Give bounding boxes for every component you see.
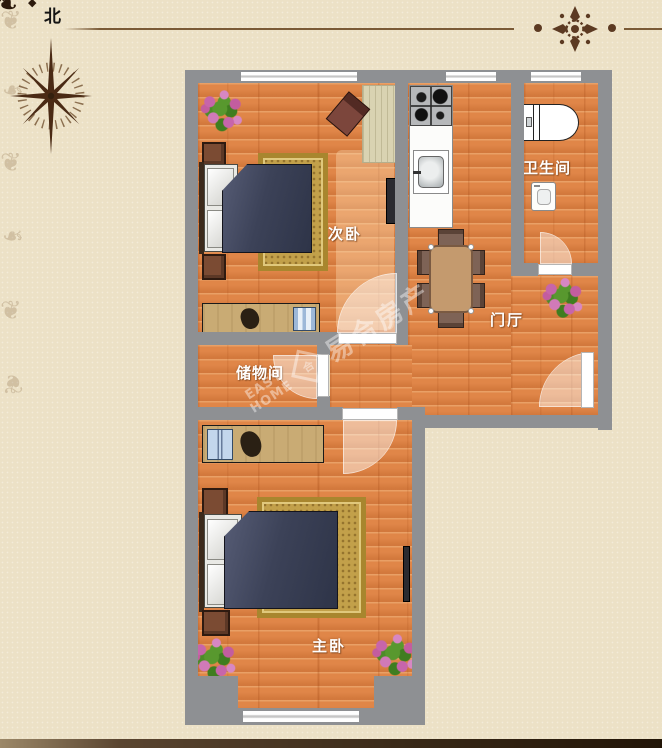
north-label: 北 — [44, 2, 61, 27]
compass-rose-icon — [8, 36, 94, 154]
wall-bathroom-bottom-left — [511, 263, 538, 276]
room-label-entrance-hall: 门厅 — [490, 309, 524, 330]
storage-cabinet-icon — [202, 303, 320, 334]
flower-pot-icon — [542, 276, 584, 320]
divider-rule-left — [64, 28, 514, 30]
tv-icon — [403, 546, 410, 602]
bed-duvet — [222, 164, 312, 253]
window — [445, 71, 497, 82]
wall-corner-pier — [198, 676, 238, 708]
wall-left — [185, 70, 198, 725]
wall-corner-pier — [374, 676, 412, 708]
wall-hall-bottom — [412, 415, 612, 428]
dining-chair-icon — [438, 311, 464, 328]
nightstand-icon — [202, 254, 226, 280]
bed-duvet — [224, 511, 338, 609]
nightstand-icon — [202, 610, 230, 636]
stove-icon — [410, 86, 452, 126]
window — [240, 71, 358, 82]
door-leaf-master-bedroom — [342, 408, 398, 420]
wall-right-upper — [598, 70, 612, 430]
wall-kitchen-bathroom — [511, 83, 524, 276]
window — [530, 71, 582, 82]
nightstand-icon — [202, 142, 226, 166]
wardrobe-icon — [202, 425, 324, 463]
room-label-bathroom: 卫生间 — [523, 157, 571, 178]
room-label-secondary-bedroom: 次卧 — [328, 223, 362, 244]
floorplan-page: ❧ ◆ ❦ ❧ ❦ ❧ ❦ ❦ 北 — [0, 0, 662, 748]
divider-dot-icon — [534, 24, 542, 32]
divider-rule-right — [624, 28, 662, 30]
door-leaf-entrance — [581, 352, 594, 408]
dining-chair-icon — [438, 229, 464, 246]
divider-dot-icon — [608, 24, 616, 32]
dining-chair-icon — [471, 283, 485, 308]
flower-pot-icon — [200, 88, 244, 134]
window — [242, 710, 360, 723]
dining-chair-icon — [471, 250, 485, 275]
sink-icon — [413, 150, 449, 194]
bottom-border-bar — [0, 739, 662, 748]
wall-bathroom-bottom-right — [572, 263, 612, 276]
toilet-icon — [522, 104, 579, 141]
wall-master-right — [412, 407, 425, 725]
corner-diamond-icon: ◆ — [28, 0, 36, 9]
washbasin-icon — [531, 182, 556, 211]
divider-rosette-icon — [551, 5, 599, 53]
watermark-logo-icon: 合 — [291, 349, 324, 382]
door-leaf-bathroom — [538, 264, 572, 275]
room-label-master-bedroom: 主卧 — [312, 635, 346, 656]
